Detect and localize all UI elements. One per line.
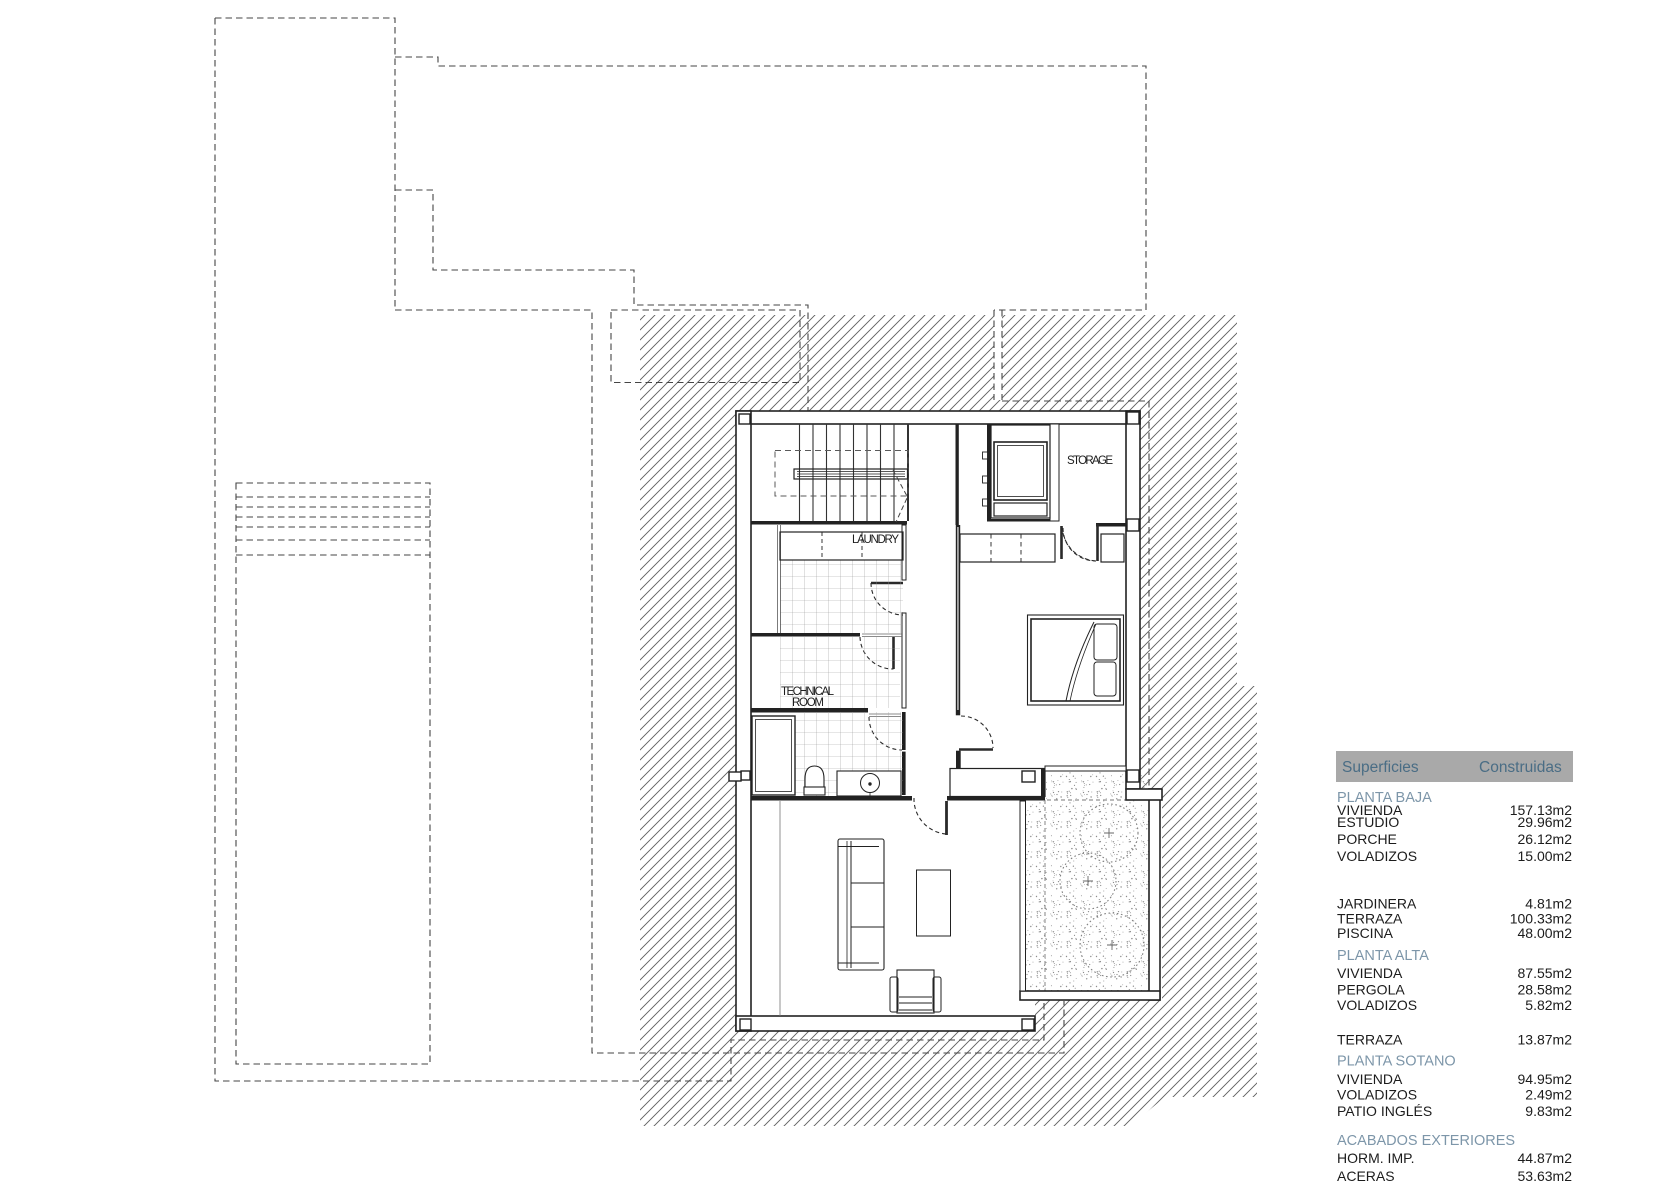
svg-text:Construidas: Construidas <box>1479 759 1562 776</box>
svg-text:ACERAS: ACERAS <box>1337 1168 1395 1184</box>
svg-text:PORCHE: PORCHE <box>1337 831 1397 847</box>
svg-text:ROOM: ROOM <box>792 697 824 709</box>
svg-text:15.00m2: 15.00m2 <box>1518 848 1573 864</box>
svg-text:2.49m2: 2.49m2 <box>1525 1087 1572 1103</box>
svg-text:4.81m2: 4.81m2 <box>1525 896 1572 912</box>
svg-text:VIVIENDA: VIVIENDA <box>1337 965 1403 981</box>
svg-text:5.82m2: 5.82m2 <box>1525 997 1572 1013</box>
svg-text:48.00m2: 48.00m2 <box>1518 925 1573 941</box>
svg-text:26.12m2: 26.12m2 <box>1518 831 1573 847</box>
svg-text:VOLADIZOS: VOLADIZOS <box>1337 997 1417 1013</box>
svg-text:94.95m2: 94.95m2 <box>1518 1071 1573 1087</box>
svg-text:TERRAZA: TERRAZA <box>1337 1032 1403 1048</box>
svg-text:PATIO INGLÉS: PATIO INGLÉS <box>1337 1103 1432 1119</box>
svg-text:STORAGE: STORAGE <box>1067 455 1113 467</box>
svg-text:87.55m2: 87.55m2 <box>1518 965 1573 981</box>
svg-text:29.96m2: 29.96m2 <box>1518 814 1573 830</box>
svg-text:Superficies: Superficies <box>1342 759 1419 776</box>
svg-text:VIVIENDA: VIVIENDA <box>1337 1071 1403 1087</box>
svg-text:JARDINERA: JARDINERA <box>1337 896 1417 912</box>
svg-text:VOLADIZOS: VOLADIZOS <box>1337 1087 1417 1103</box>
svg-text:13.87m2: 13.87m2 <box>1518 1032 1573 1048</box>
svg-text:ESTUDIO: ESTUDIO <box>1337 814 1399 830</box>
svg-text:PERGOLA: PERGOLA <box>1337 982 1405 998</box>
svg-text:PLANTA ALTA: PLANTA ALTA <box>1337 948 1429 964</box>
svg-text:VOLADIZOS: VOLADIZOS <box>1337 848 1417 864</box>
svg-text:9.83m2: 9.83m2 <box>1525 1103 1572 1119</box>
svg-text:HORM. IMP.: HORM. IMP. <box>1337 1150 1415 1166</box>
svg-text:PLANTA SOTANO: PLANTA SOTANO <box>1337 1054 1456 1070</box>
svg-text:53.63m2: 53.63m2 <box>1518 1168 1573 1184</box>
svg-text:LAUNDRY: LAUNDRY <box>852 534 899 546</box>
svg-text:ACABADOS EXTERIORES: ACABADOS EXTERIORES <box>1337 1133 1515 1149</box>
svg-text:PISCINA: PISCINA <box>1337 925 1394 941</box>
svg-text:28.58m2: 28.58m2 <box>1518 982 1573 998</box>
svg-text:44.87m2: 44.87m2 <box>1518 1150 1573 1166</box>
